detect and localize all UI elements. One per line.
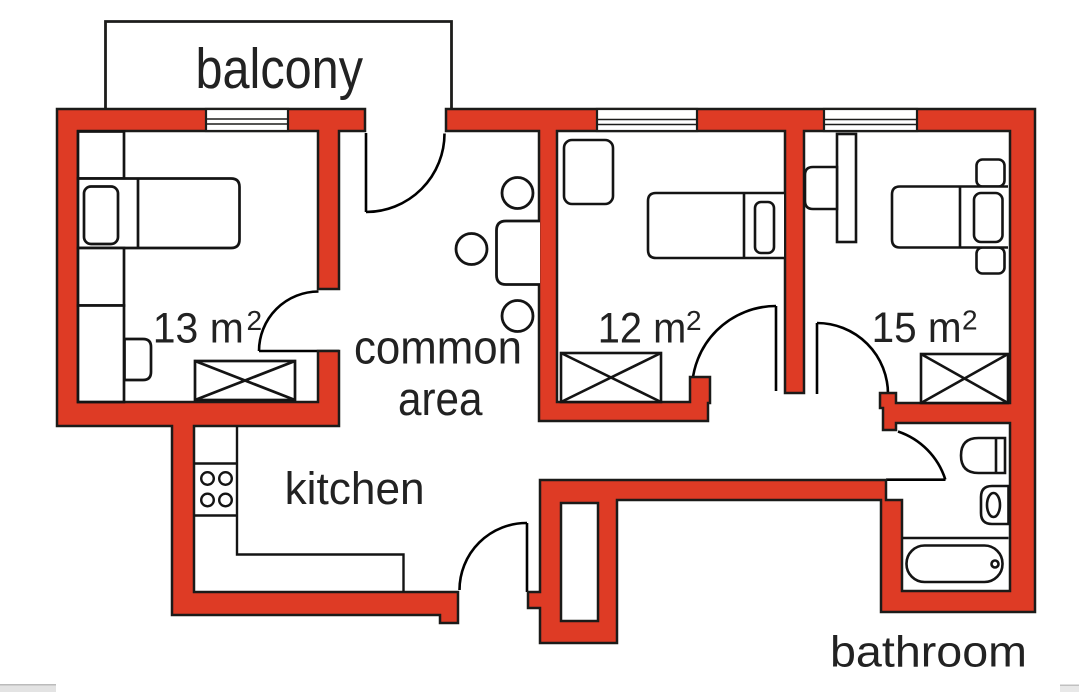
svg-text:2: 2 [962,305,978,336]
svg-text:2: 2 [686,305,702,336]
svg-text:2: 2 [247,305,263,336]
svg-text:kitchen: kitchen [285,463,425,514]
svg-text:bathroom: bathroom [830,628,1027,677]
svg-text:13 m: 13 m [153,305,244,353]
svg-text:balcony: balcony [196,37,364,101]
svg-text:15 m: 15 m [872,304,962,352]
svg-text:12 m: 12 m [598,305,687,353]
svg-text:area: area [398,372,483,425]
svg-text:common: common [354,321,522,374]
